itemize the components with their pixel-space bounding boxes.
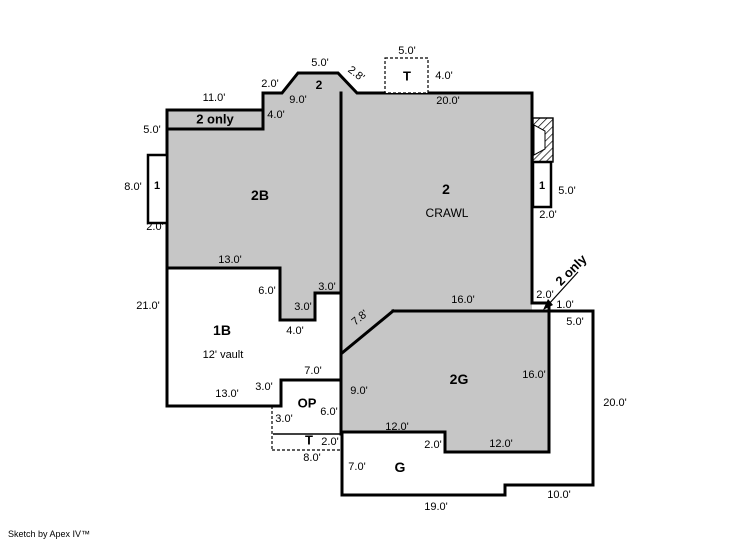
dim-top-11ft: 11.0': [203, 92, 226, 104]
dim-op-3ft-step: 3.0': [255, 381, 272, 393]
dim-op-6ft: 6.0': [320, 406, 337, 418]
dim-1b-13ft: 13.0': [215, 388, 239, 400]
dim-left-5ft: 5.0': [143, 124, 160, 136]
dim-2g-16ft: 16.0': [522, 369, 546, 381]
room-label-1b: 1B: [213, 322, 231, 338]
dim-top-9ft: 9.0': [289, 94, 306, 106]
dim-2g-12ft-left: 12.0': [385, 421, 409, 433]
room-label-t-bottom: T: [305, 433, 313, 448]
dim-g-7ft: 7.0': [348, 461, 365, 473]
dim-ttop-5ft: 5.0': [398, 45, 415, 57]
room-label-2g: 2G: [450, 371, 469, 387]
dim-left-2ft: 2.0': [146, 221, 163, 233]
dim-notch-6ft: 6.0': [258, 285, 275, 297]
dim-mid-13ft: 13.0': [218, 254, 242, 266]
sketch-credit: Sketch by Apex IV™: [8, 529, 90, 539]
room-label-bump-2: 2: [316, 78, 323, 92]
dim-left-8ft: 8.0': [124, 181, 141, 193]
dim-notch-4ft: 4.0': [286, 325, 303, 337]
dim-corner-5ft: 5.0': [566, 316, 583, 328]
room-label-2only-band: 2 only: [196, 112, 234, 127]
dim-notch-3ft-v: 3.0': [294, 301, 311, 313]
note-12ft-vault: 12' vault: [203, 349, 244, 361]
dim-bump-5ft: 5.0': [311, 57, 328, 69]
room-label-op: OP: [298, 396, 317, 411]
dim-corner-2ft: 2.0': [536, 289, 553, 301]
room-label-2: 2: [442, 181, 450, 197]
floor-plan-sketch: 5.0'22.8'5.0'T4.0'2.0'9.0'20.0'11.0'2 on…: [0, 0, 746, 547]
dim-left-21ft: 21.0': [136, 300, 160, 312]
dim-g-2ft: 2.0': [424, 439, 441, 451]
dim-notch-3ft-h: 3.0': [318, 281, 335, 293]
room-label-crawl: CRAWL: [426, 206, 469, 220]
dim-top-2ft: 2.0': [261, 78, 278, 90]
dim-mid-16ft: 16.0': [451, 294, 475, 306]
dim-op-7ft: 7.0': [304, 365, 321, 377]
fireplace: [533, 118, 553, 162]
room-label-g: G: [395, 459, 406, 475]
room-label-2b: 2B: [251, 187, 269, 203]
dim-tbottom-2ft: 2.0': [321, 436, 338, 448]
room-label-t-top: T: [403, 69, 411, 84]
dim-tbottom-8ft: 8.0': [303, 452, 320, 464]
dim-corner-1ft: 1.0': [556, 299, 573, 311]
dim-right-2ft: 2.0': [539, 209, 556, 221]
room-label-1-right: 1: [539, 180, 545, 192]
dim-right-5ft: 5.0': [558, 185, 575, 197]
sketch-canvas: 5.0'22.8'5.0'T4.0'2.0'9.0'20.0'11.0'2 on…: [0, 0, 746, 547]
dim-op-3ft-dash: 3.0': [275, 413, 292, 425]
room-label-1-left: 1: [154, 180, 160, 192]
dim-band-4ft: 4.0': [267, 109, 284, 121]
dim-g-10ft: 10.0': [547, 489, 571, 501]
dim-ttop-4ft: 4.0': [435, 70, 452, 82]
dim-right-20ft: 20.0': [603, 397, 627, 409]
dim-2g-9ft: 9.0': [350, 385, 367, 397]
dim-g-19ft: 19.0': [424, 501, 448, 513]
dim-top-20ft: 20.0': [436, 95, 460, 107]
dim-bump-2-8ft: 2.8': [345, 64, 366, 84]
dim-2g-12ft-right: 12.0': [489, 438, 513, 450]
note-2only-rotated: 2 only: [552, 251, 590, 289]
